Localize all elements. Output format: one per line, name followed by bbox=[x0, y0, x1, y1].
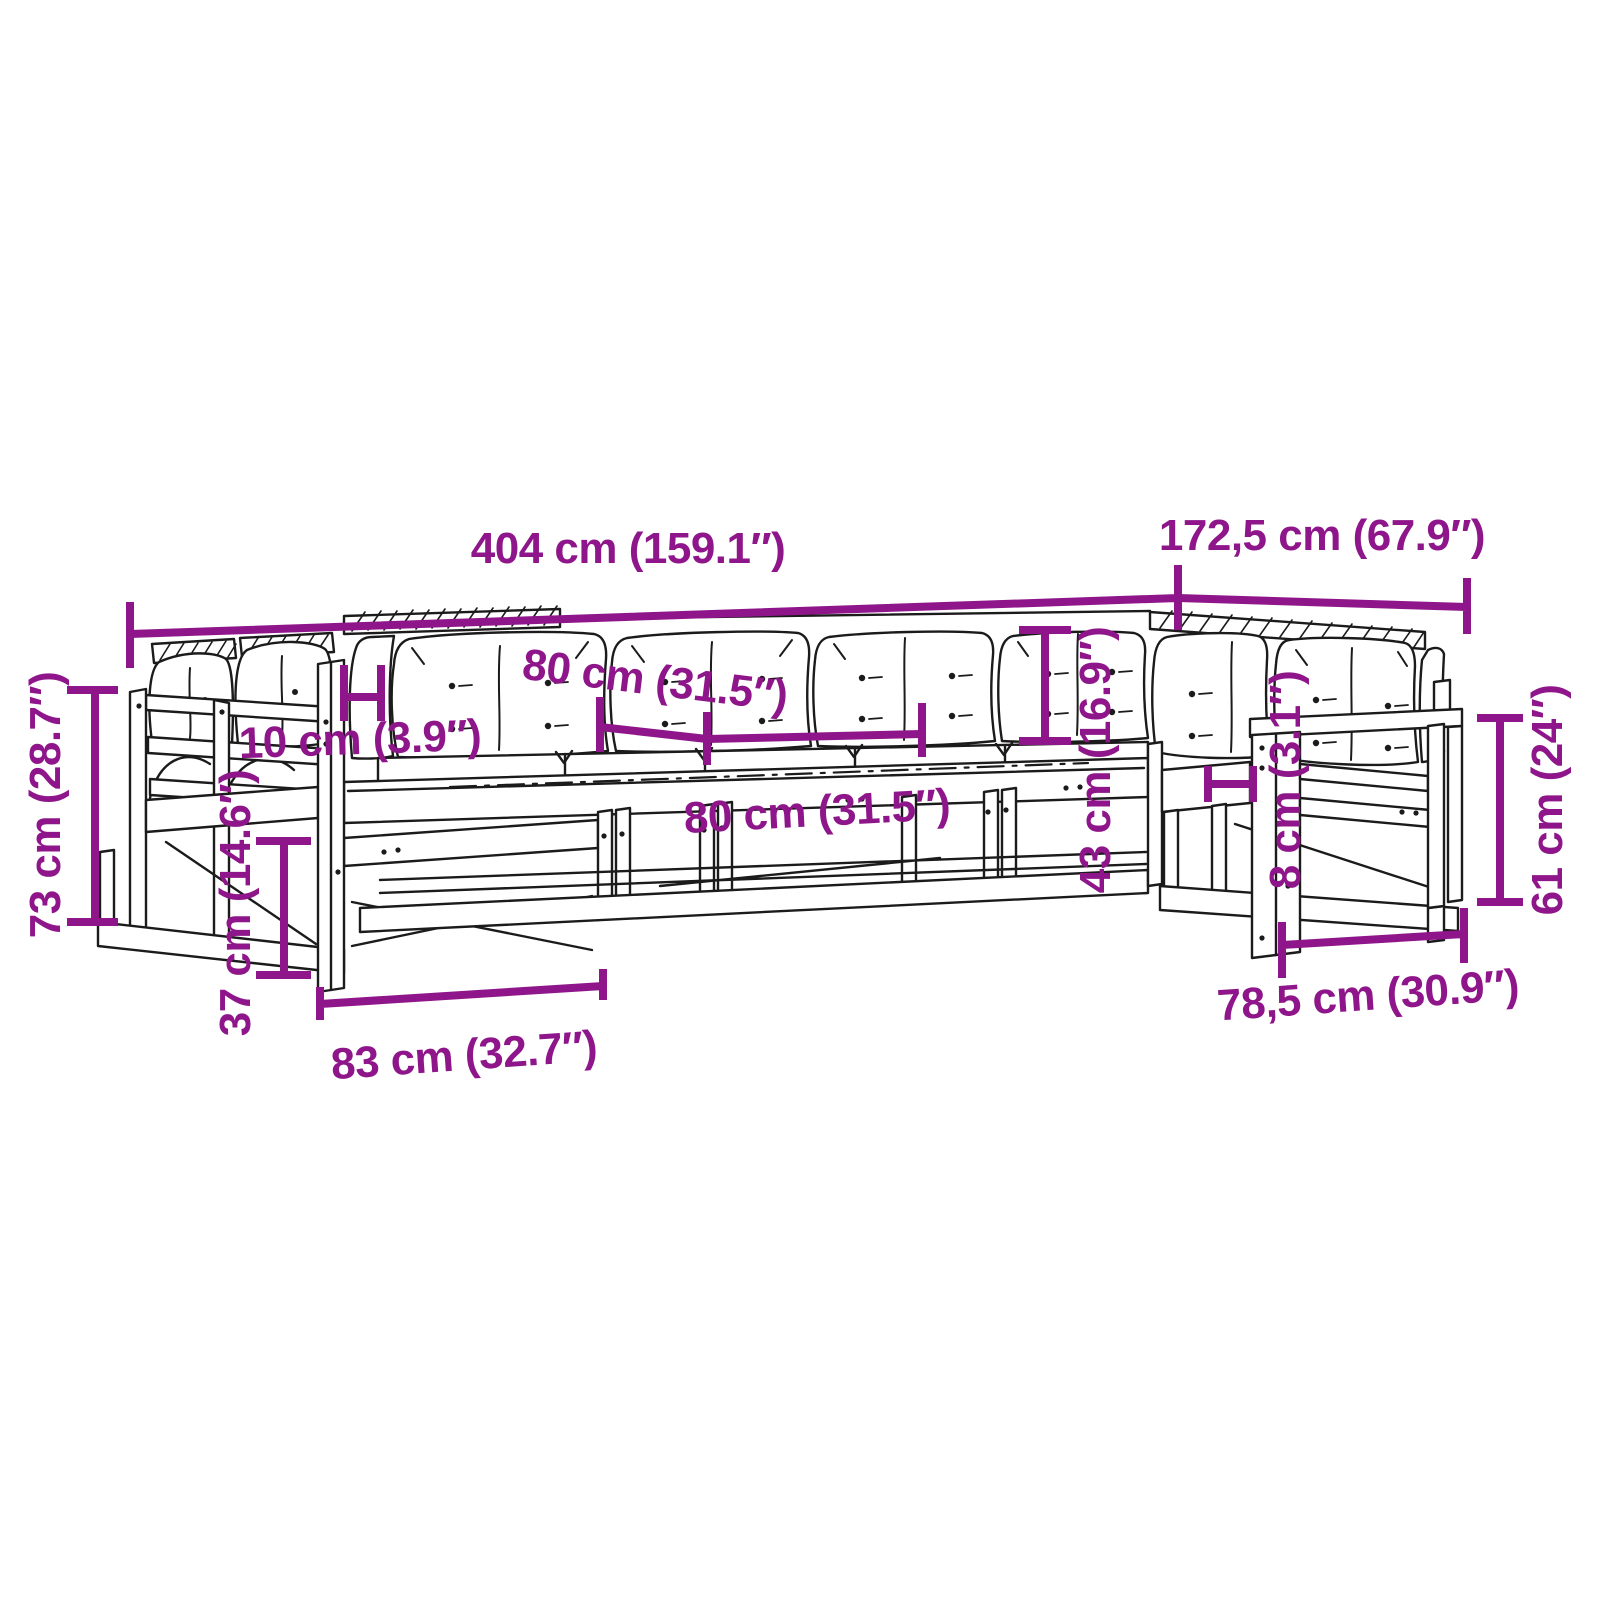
dimension-label-overall-width: 404 cm (159.1″) bbox=[471, 524, 785, 574]
dimension-label-armrest-width: 10 cm (3.9″) bbox=[238, 711, 482, 769]
dimension-label-clearance-height: 37 cm (14.6″) bbox=[211, 770, 261, 1037]
dim-armrest-height-line bbox=[1477, 718, 1523, 902]
dimension-label-backrest-height: 43 cm (16.9″) bbox=[1071, 627, 1121, 894]
dimension-label-overall-height: 73 cm (28.7″) bbox=[21, 672, 71, 939]
dimension-diagram: 404 cm (159.1″) 172,5 cm (67.9″) 73 cm (… bbox=[0, 0, 1600, 1600]
dimension-label-overall-depth: 172,5 cm (67.9″) bbox=[1159, 511, 1485, 561]
dimension-label-armrest-thickness: 8 cm (3.1″) bbox=[1261, 671, 1311, 890]
dim-module-width-line bbox=[320, 969, 603, 1020]
dimension-label-armrest-height: 61 cm (24″) bbox=[1523, 685, 1573, 916]
